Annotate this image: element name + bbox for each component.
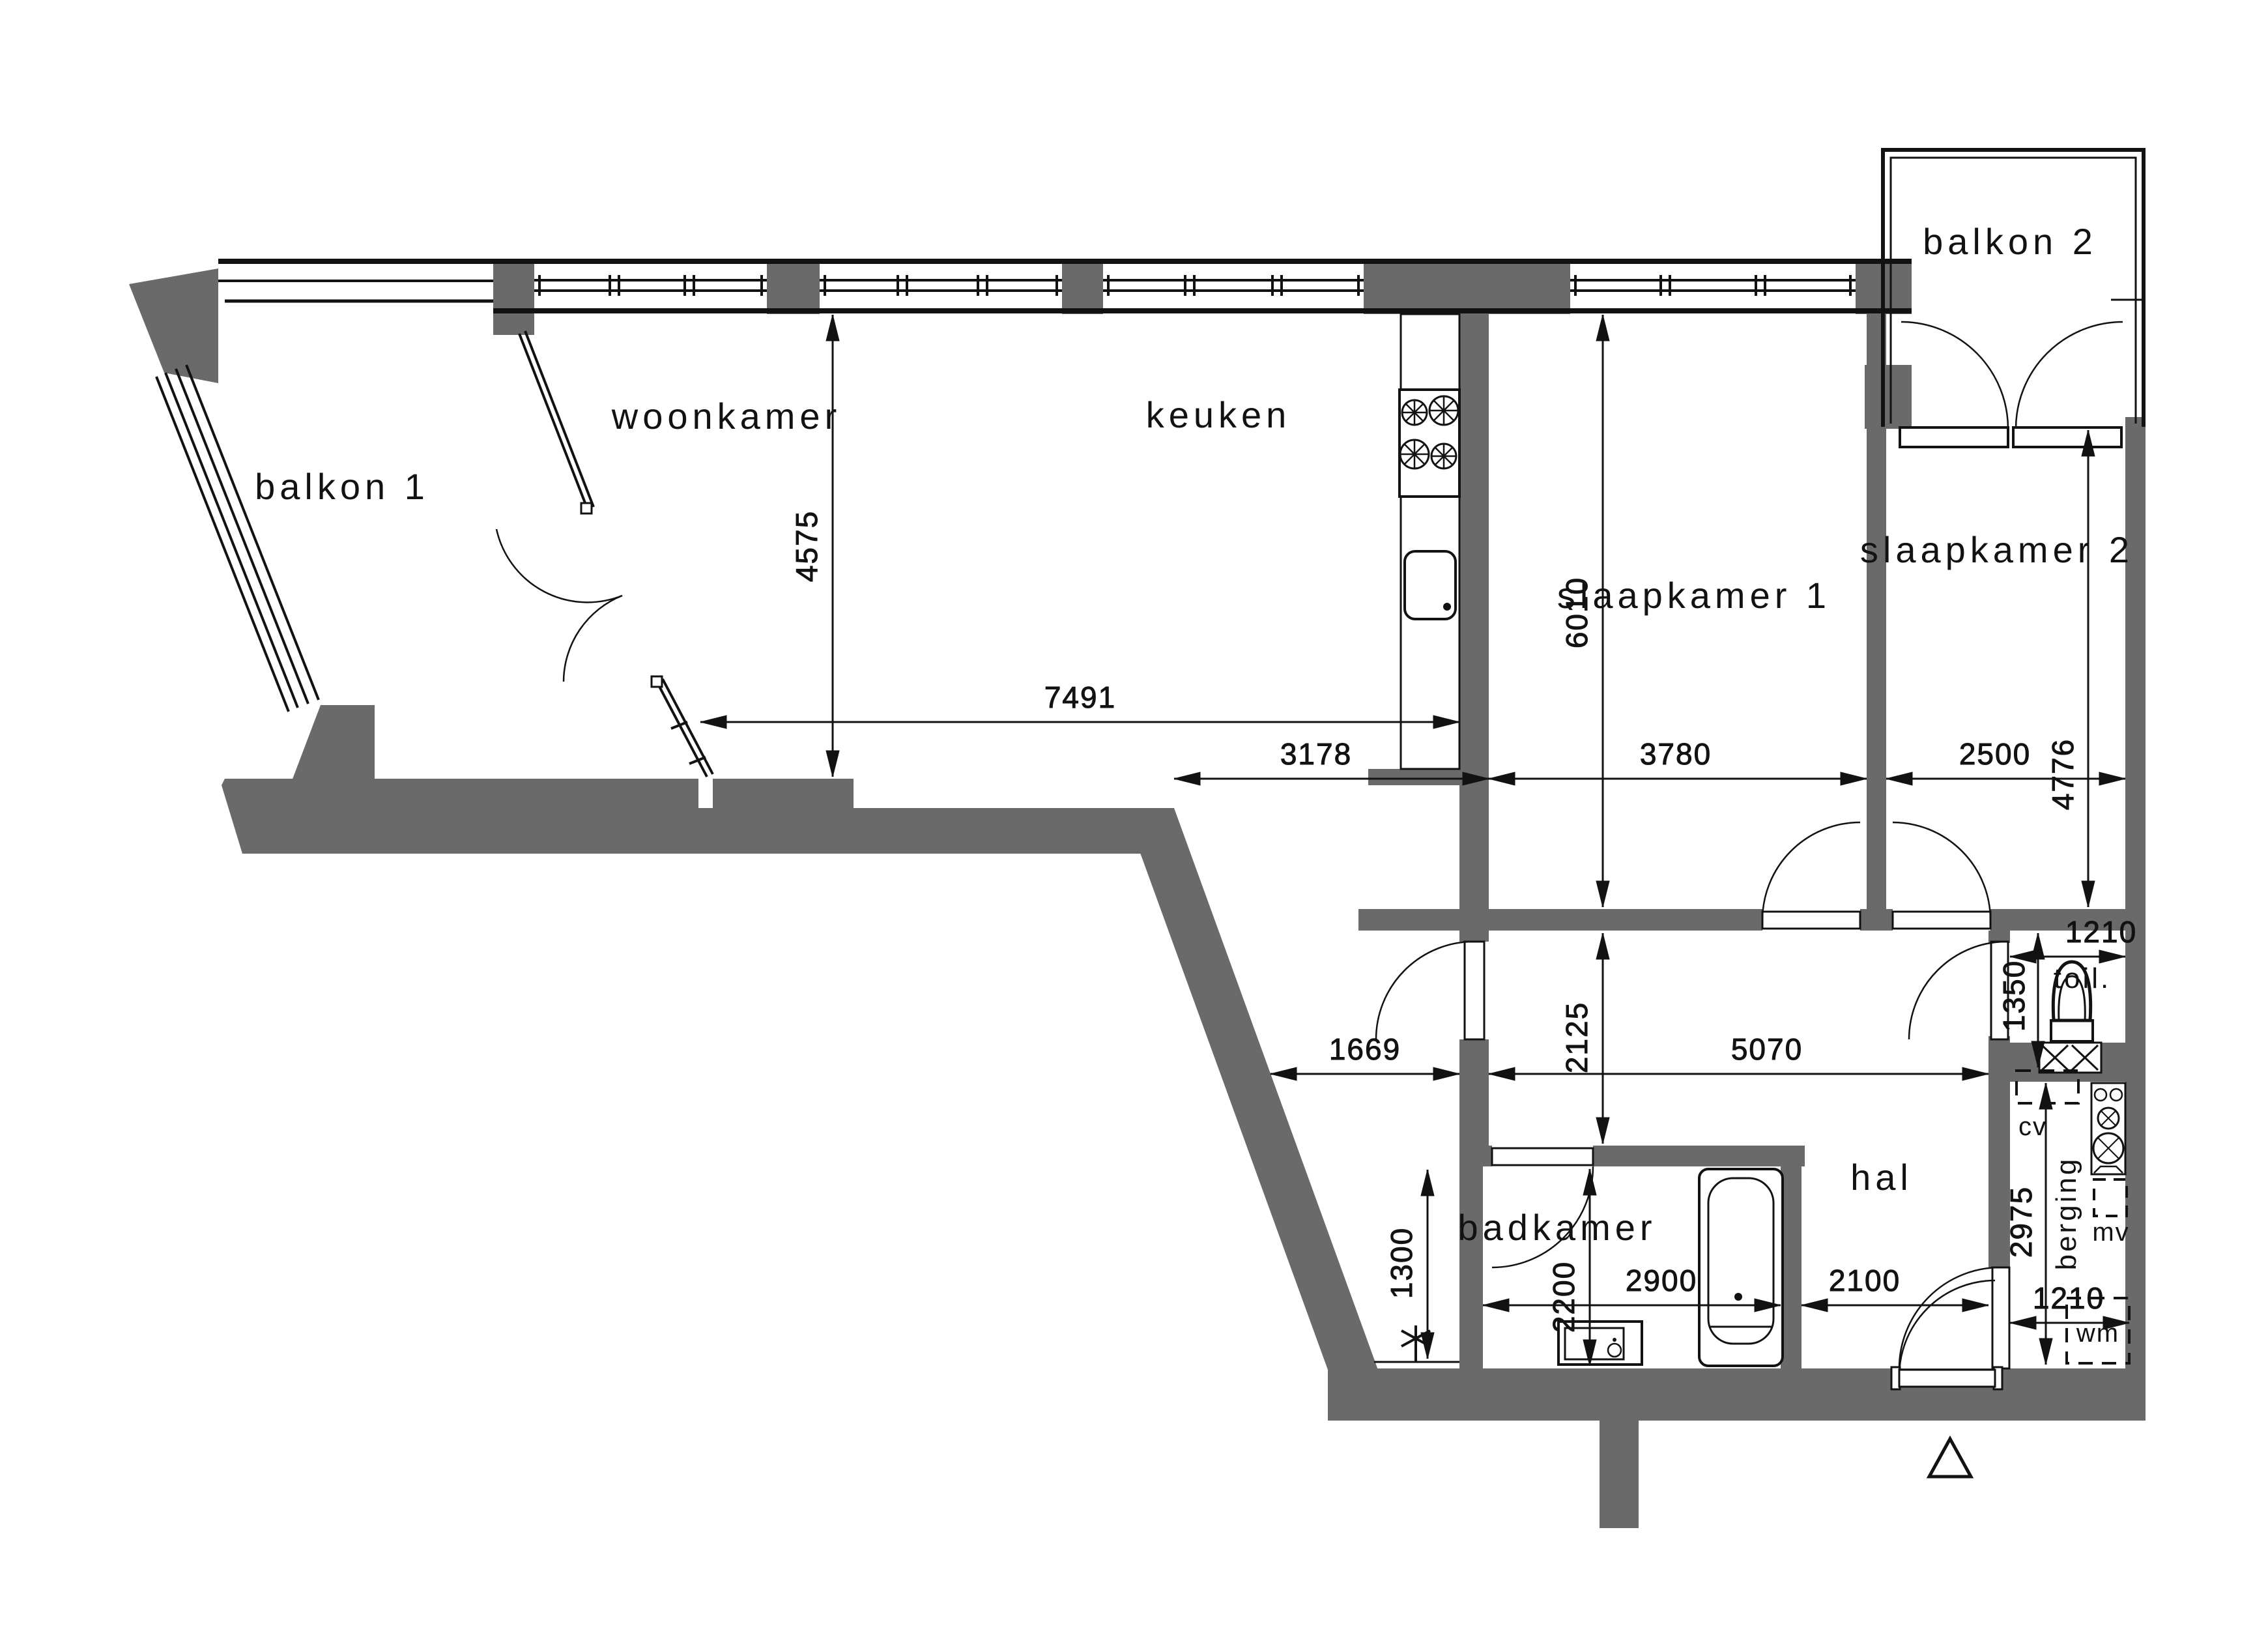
wall-pier (129, 268, 218, 383)
dim-label-2500: 2500 (1959, 737, 2031, 771)
dim-label-2200: 2200 (1547, 1261, 1581, 1333)
door-arc-balkon1-upper (496, 529, 622, 602)
wall-stub (1600, 1421, 1639, 1528)
floorplan-canvas: 4575 7491 3178 6010 3780 (0, 0, 2268, 1648)
outer-wall (222, 779, 854, 854)
dim-label-3780: 3780 (1640, 737, 1712, 771)
door-arc-berging (1899, 1267, 2000, 1368)
wall-pier (493, 259, 534, 335)
mv-label: mv (2092, 1218, 2129, 1247)
room-label-badkamer: badkamer (1457, 1207, 1656, 1248)
door-leaf-slaapkamer1 (1762, 912, 1860, 929)
dim-label-2125: 2125 (1560, 1002, 1594, 1073)
wall-pier (292, 705, 375, 781)
entrance-triangle (1929, 1439, 1971, 1477)
inner-wall (1358, 909, 1762, 931)
door-arc-slaapkamer1 (1762, 822, 1860, 920)
room-label-woonkamer: woonkamer (611, 396, 841, 437)
dim-label-2100: 2100 (1829, 1264, 1901, 1297)
room-label-hal: hal (1850, 1157, 1913, 1198)
outer-wall-diagonal (1124, 808, 1378, 1370)
balkon2-walls (1883, 150, 2144, 427)
room-label-toilet: toil. (2054, 962, 2111, 994)
door-arc-slaapkamer2 (1893, 822, 1990, 920)
walls (129, 259, 2146, 1528)
duct-x-box (2039, 1043, 2101, 1073)
dim-label-4776: 4776 (2046, 738, 2080, 810)
inner-wall (1860, 909, 1893, 931)
dim-label-4575: 4575 (790, 510, 824, 582)
dim-label-3178: 3178 (1280, 737, 1352, 771)
dim-label-1210-toilet: 1210 (2065, 915, 2137, 949)
room-label-keuken: keuken (1146, 394, 1291, 435)
stove (1400, 390, 1459, 497)
inner-wall (1593, 1146, 1805, 1166)
room-label-berging: berging (2050, 1157, 2082, 1271)
kitchen-counter (1400, 314, 1459, 769)
window-mullions (539, 275, 1850, 296)
inner-wall (1459, 1166, 1483, 1421)
inner-wall (1483, 1146, 1492, 1166)
cv-label: cv (2018, 1112, 2047, 1141)
dim-label-5070: 5070 (1731, 1032, 1803, 1066)
dim-label-1350: 1350 (1997, 960, 2031, 1032)
wall-pier (767, 259, 820, 314)
door-arc-hal (1376, 942, 1474, 1039)
dim-label-2900: 2900 (1626, 1264, 1697, 1297)
room-label-balkon-1: balkon 1 (255, 466, 429, 507)
dim-label-2975: 2975 (2004, 1186, 2038, 1258)
outer-wall (854, 808, 1174, 854)
door-arc-entrance (1899, 1280, 1995, 1376)
balkon2-doors (1900, 322, 2123, 447)
wall-notch (698, 779, 713, 808)
dim-label-1300: 1300 (1385, 1227, 1418, 1299)
door-leaf-entrance (1899, 1370, 1995, 1387)
wm-label: wm (2076, 1319, 2119, 1348)
wall-pier (1364, 259, 1570, 314)
dim-3178: 3178 (1174, 737, 1489, 785)
wall-stub (1368, 769, 1459, 785)
door-arc-balkon2-left (1901, 322, 2008, 429)
dim-2500: 2500 (1886, 737, 2125, 785)
dim-3780: 3780 (1489, 737, 1867, 785)
door-leaf-badkamer (1492, 1148, 1593, 1165)
dim-4776: 4776 (2046, 430, 2095, 907)
inner-wall (1459, 313, 1489, 942)
room-label-slaapkamer-2: slaapkamer 2 (1860, 529, 2134, 570)
door-arc-balkon1-lower (564, 596, 622, 682)
outer-wall (1328, 1368, 2146, 1421)
room-label-balkon-2: balkon 2 (1923, 221, 2097, 262)
dim-label-1669: 1669 (1329, 1032, 1401, 1066)
mv-box (2094, 1179, 2127, 1216)
dim-label-1210-berging: 1210 (2033, 1281, 2104, 1315)
door-leaf-slaapkamer2 (1893, 912, 1990, 929)
kitchen-sink (1405, 551, 1456, 619)
wall-pier (1062, 259, 1103, 314)
dim-1300: 1300 (1385, 1170, 1434, 1359)
facade-windows (156, 261, 1912, 777)
door-arc-balkon2-right (2016, 322, 2123, 429)
bathtub (1699, 1169, 1783, 1366)
dim-2125: 2125 (1560, 933, 1609, 1144)
door-leaf-berging (1992, 1267, 2009, 1368)
dim-7491: 7491 (700, 680, 1459, 729)
dim-label-7491: 7491 (1044, 680, 1116, 714)
balkon1-railing (156, 365, 319, 712)
dim-4575: 4575 (790, 315, 839, 777)
dim-1669: 1669 (1270, 1032, 1459, 1080)
room-label-slaapkamer-1: slaapkamer 1 (1557, 575, 1831, 616)
door-leaf-hal (1465, 942, 1484, 1039)
berging-sink (2091, 1083, 2125, 1174)
